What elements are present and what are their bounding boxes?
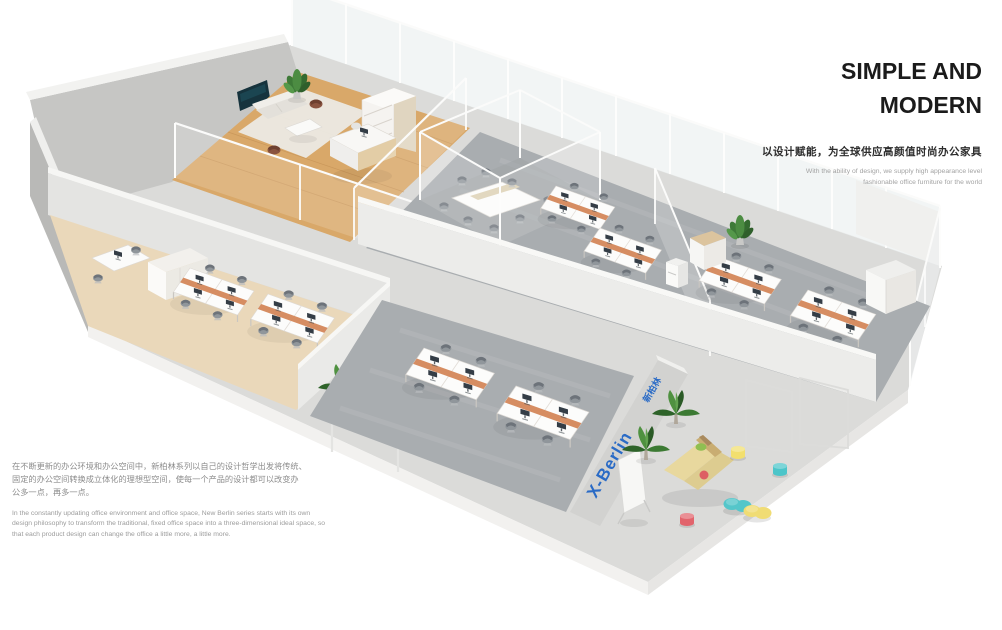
armchair [268,146,281,155]
sofa-cushion-green [696,443,707,451]
description-block: 在不断更新的办公环境和办公空间中，新柏林系列以自己的设计哲学出发将传统、 固定的… [12,460,325,541]
printer [666,258,688,288]
header: SIMPLE AND MODERN 以设计赋能，为全球供应高颜值时尚办公家具 W… [762,54,982,188]
description-english: In the constantly updating office enviro… [12,509,325,541]
armchair [310,100,323,109]
sofa-cushion-red [700,471,709,480]
title-line-1: SIMPLE AND [762,54,982,88]
stool [772,463,788,478]
stool [730,446,746,461]
title-line-2: MODERN [762,88,982,122]
page-title: SIMPLE AND MODERN [762,54,982,122]
tagline-english: With the ability of design, we supply hi… [762,166,982,188]
tagline-chinese: 以设计赋能，为全球供应高颜值时尚办公家具 [762,144,982,159]
stool [679,513,695,528]
desk-chair [351,123,361,130]
description-chinese: 在不断更新的办公环境和办公空间中，新柏林系列以自己的设计哲学出发将传统、 固定的… [12,460,325,500]
bean-pouf [743,505,772,523]
brochure-page: X-Berlin 新柏林 [0,0,1002,630]
